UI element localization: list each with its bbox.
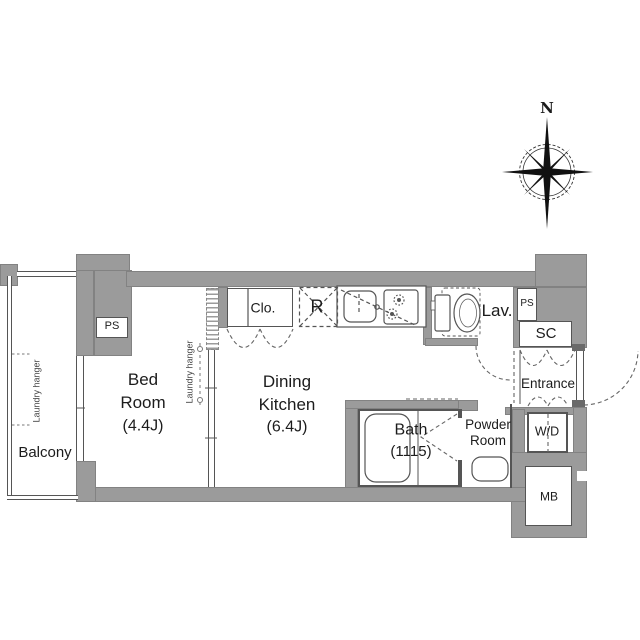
meter-box-label: MB — [540, 491, 558, 504]
meter-box-notch — [577, 471, 587, 481]
dining-kitchen-size-label: (6.4J) — [267, 420, 308, 437]
kitchen-counter — [337, 286, 426, 327]
wall-left-upper — [76, 270, 94, 356]
wall-bath-top — [345, 400, 460, 409]
entrance-door-jamb-bottom — [572, 400, 585, 407]
washer-dryer-fold-arcs — [528, 397, 568, 406]
wall-top-right-raised — [535, 254, 587, 287]
sliding-door-partition — [208, 350, 215, 487]
bedroom-size-label: (4.4J) — [123, 419, 164, 436]
laundry-hanger-label-bedroom: Laundry hanger — [185, 340, 194, 403]
balcony-railing-left — [7, 276, 12, 500]
burner-icon — [387, 295, 404, 319]
pipe-space-right-label: PS — [520, 299, 534, 310]
lavatory-door-arc — [476, 346, 510, 380]
bath-right-stub-top — [458, 409, 462, 418]
lavatory-label: Lav. — [482, 302, 513, 320]
closet-label: Clo. — [251, 301, 276, 316]
laundry-hanger-label-balcony: Laundry hanger — [32, 359, 41, 422]
entrance-door-jamb-top — [572, 344, 585, 351]
shoe-closet-arcs — [520, 350, 575, 366]
dining-kitchen-label: Kitchen — [259, 396, 316, 414]
powder-room-label: Powder — [465, 418, 511, 432]
wall-bottom-left-step — [76, 461, 96, 502]
range-hood-dash — [341, 290, 415, 325]
washer-dryer-label: W/D — [535, 425, 559, 438]
floor-plan: N Balcony Laundry hanger Laundry hanger … — [0, 0, 640, 640]
wall-bottom-main — [94, 487, 534, 502]
bedroom-label: Bed — [128, 371, 158, 389]
hanger-hook-icon — [198, 347, 203, 352]
hanging-wall-hatch — [206, 288, 219, 350]
compass-rose-icon — [502, 117, 593, 229]
bedroom-label: Room — [120, 394, 165, 412]
toilet-icon — [431, 288, 480, 336]
bath-right-stub-bottom — [458, 460, 462, 487]
bath-size-label: (1115) — [390, 444, 431, 460]
pipe-space-left-label: PS — [105, 321, 120, 333]
entrance-door-arc — [584, 351, 638, 405]
wall-lav-left — [423, 287, 432, 345]
balcony-railing-bottom — [7, 495, 78, 500]
stove-unit — [384, 290, 418, 324]
balcony-label: Balcony — [18, 445, 71, 461]
dining-kitchen-label: Dining — [263, 373, 311, 391]
wall-top-main — [126, 271, 538, 287]
entrance-label: Entrance — [521, 377, 575, 391]
wall-lav-bottom — [425, 338, 478, 346]
entrance-door-panel — [576, 351, 584, 401]
hanger-hook-icon — [198, 398, 203, 403]
faucet-icon — [375, 305, 379, 309]
bath-label: Bath — [395, 423, 428, 440]
shoe-closet-label: SC — [536, 326, 557, 342]
wall-bath-left — [345, 402, 358, 490]
balcony-railing-top — [17, 271, 76, 277]
compass-north-label: N — [540, 101, 554, 117]
wall-powder-wd-strip — [512, 409, 525, 455]
powder-room-label: Room — [470, 434, 506, 448]
wall-top-left-notch — [76, 254, 130, 271]
bedroom-window — [76, 356, 84, 461]
kitchen-sink — [344, 291, 376, 322]
closet-bifold-arcs — [227, 329, 293, 348]
refrigerator-label: R — [311, 298, 324, 317]
